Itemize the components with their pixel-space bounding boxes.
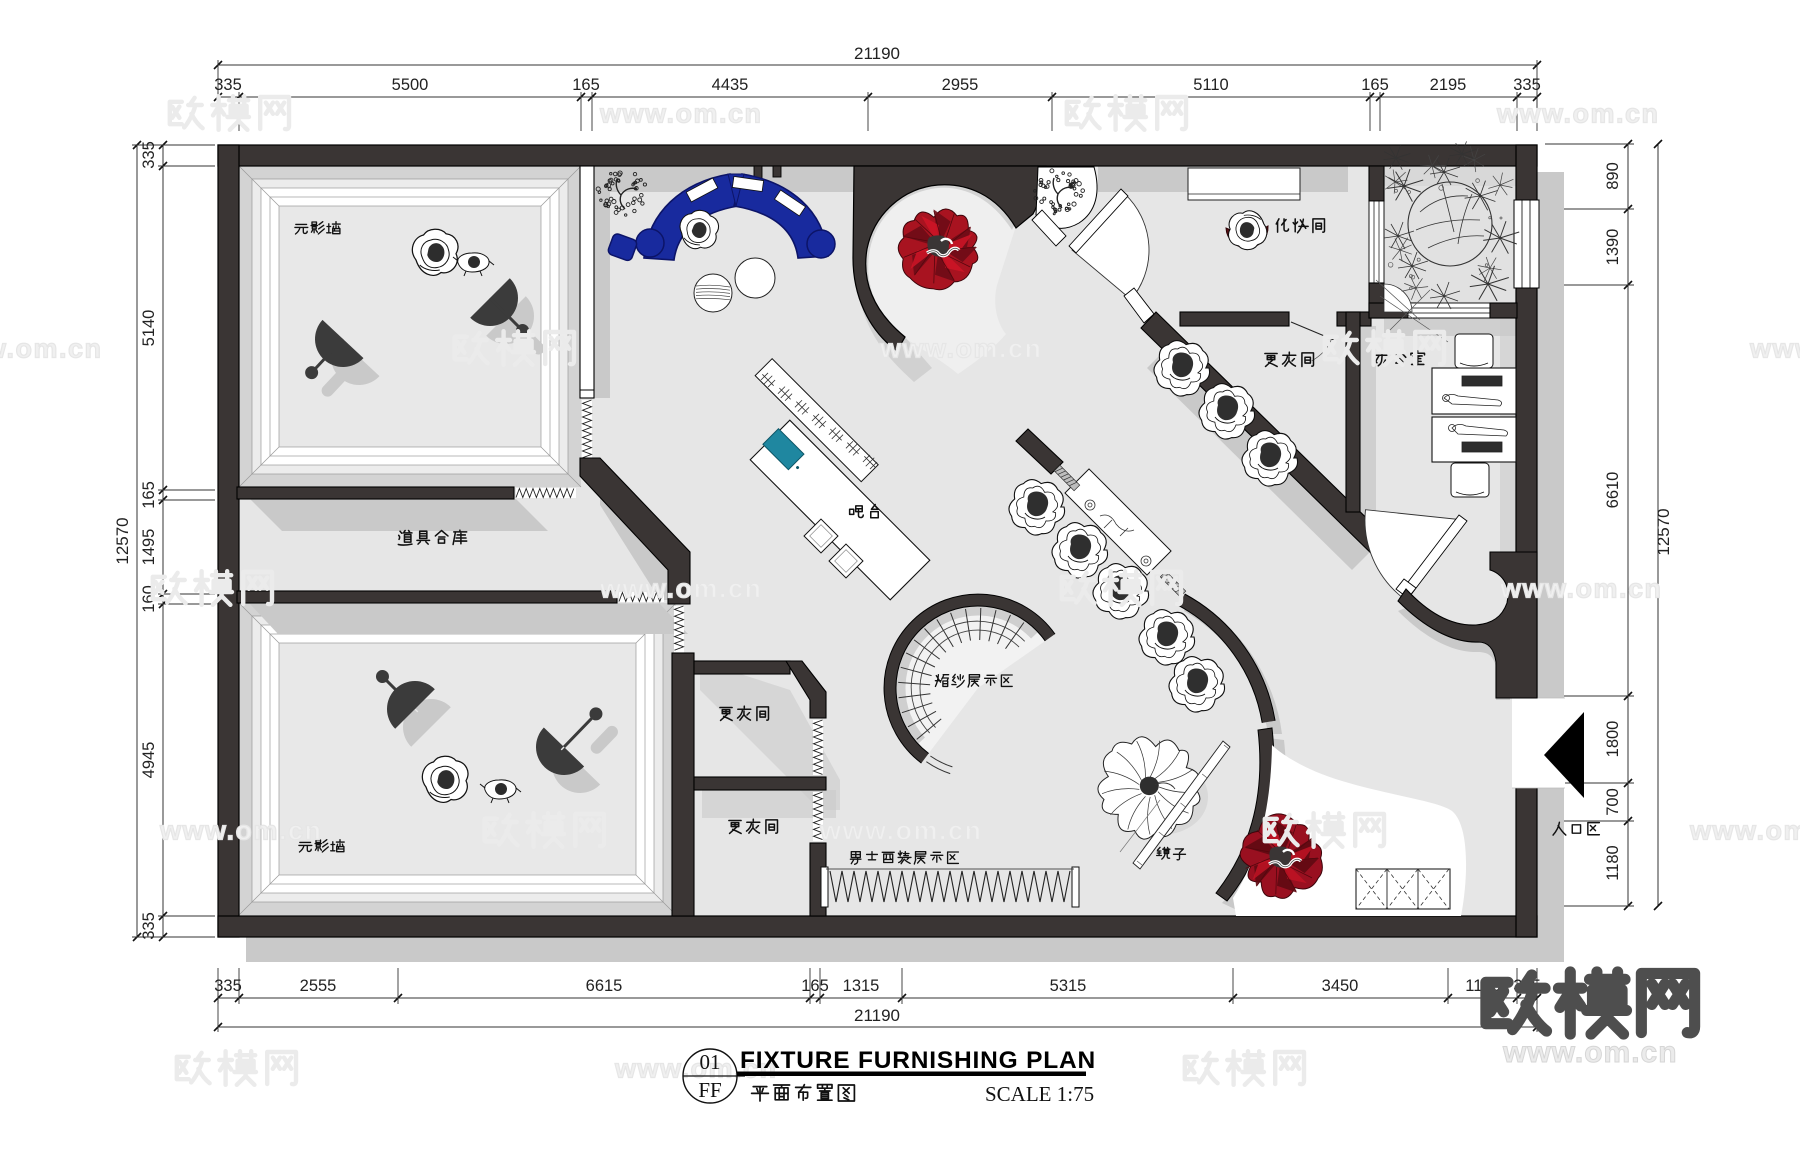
svg-text:1180: 1180	[1604, 845, 1622, 880]
svg-text:335: 335	[214, 977, 242, 995]
svg-text:www.om.cn: www.om.cn	[1499, 574, 1663, 604]
svg-text:www.om.cn: www.om.cn	[1502, 1036, 1678, 1069]
svg-text:www.om.cn: www.om.cn	[819, 816, 983, 846]
svg-text:5315: 5315	[1050, 977, 1087, 995]
svg-text:335: 335	[214, 76, 242, 94]
svg-text:01: 01	[700, 1050, 721, 1074]
svg-text:1315: 1315	[843, 977, 880, 995]
svg-text:www.om.cn: www.om.cn	[1689, 816, 1800, 846]
svg-text:FIXTURE FURNISHING PLAN: FIXTURE FURNISHING PLAN	[740, 1047, 1096, 1074]
svg-text:5140: 5140	[140, 310, 158, 347]
svg-text:12570: 12570	[1654, 508, 1673, 555]
svg-text:890: 890	[1604, 162, 1622, 190]
svg-text:6610: 6610	[1604, 472, 1622, 509]
svg-text:4945: 4945	[140, 742, 158, 779]
svg-text:2555: 2555	[300, 977, 337, 995]
svg-text:12570: 12570	[113, 517, 132, 564]
svg-text:165: 165	[1361, 76, 1389, 94]
svg-text:700: 700	[1604, 788, 1622, 816]
svg-text:335: 335	[140, 912, 158, 940]
svg-text:6615: 6615	[586, 977, 623, 995]
svg-text:www.om.cn: www.om.cn	[0, 333, 103, 363]
svg-text:www.om.cn: www.om.cn	[1749, 333, 1800, 363]
svg-text:2195: 2195	[1430, 76, 1467, 94]
svg-text:165: 165	[572, 76, 600, 94]
svg-text:4435: 4435	[712, 76, 749, 94]
svg-text:165: 165	[801, 977, 829, 995]
svg-text:1800: 1800	[1604, 721, 1622, 758]
svg-text:FF: FF	[698, 1078, 721, 1102]
svg-text:2955: 2955	[942, 76, 979, 94]
svg-text:SCALE 1:75: SCALE 1:75	[985, 1082, 1094, 1106]
svg-text:5110: 5110	[1193, 76, 1228, 94]
svg-text:www.om.cn: www.om.cn	[599, 99, 763, 129]
svg-text:www.om.cn: www.om.cn	[159, 816, 323, 846]
svg-text:21190: 21190	[854, 44, 900, 63]
svg-text:1495: 1495	[140, 529, 158, 566]
svg-text:165: 165	[140, 481, 158, 509]
svg-text:1390: 1390	[1604, 229, 1622, 266]
svg-text:www.om.cn: www.om.cn	[879, 333, 1043, 363]
svg-text:335: 335	[1513, 76, 1541, 94]
svg-text:3450: 3450	[1322, 977, 1359, 995]
svg-text:5500: 5500	[392, 76, 429, 94]
svg-text:www.om.cn: www.om.cn	[599, 574, 763, 604]
svg-text:www.om.cn: www.om.cn	[1496, 99, 1660, 129]
svg-text:335: 335	[140, 141, 158, 169]
svg-text:21190: 21190	[854, 1006, 900, 1025]
